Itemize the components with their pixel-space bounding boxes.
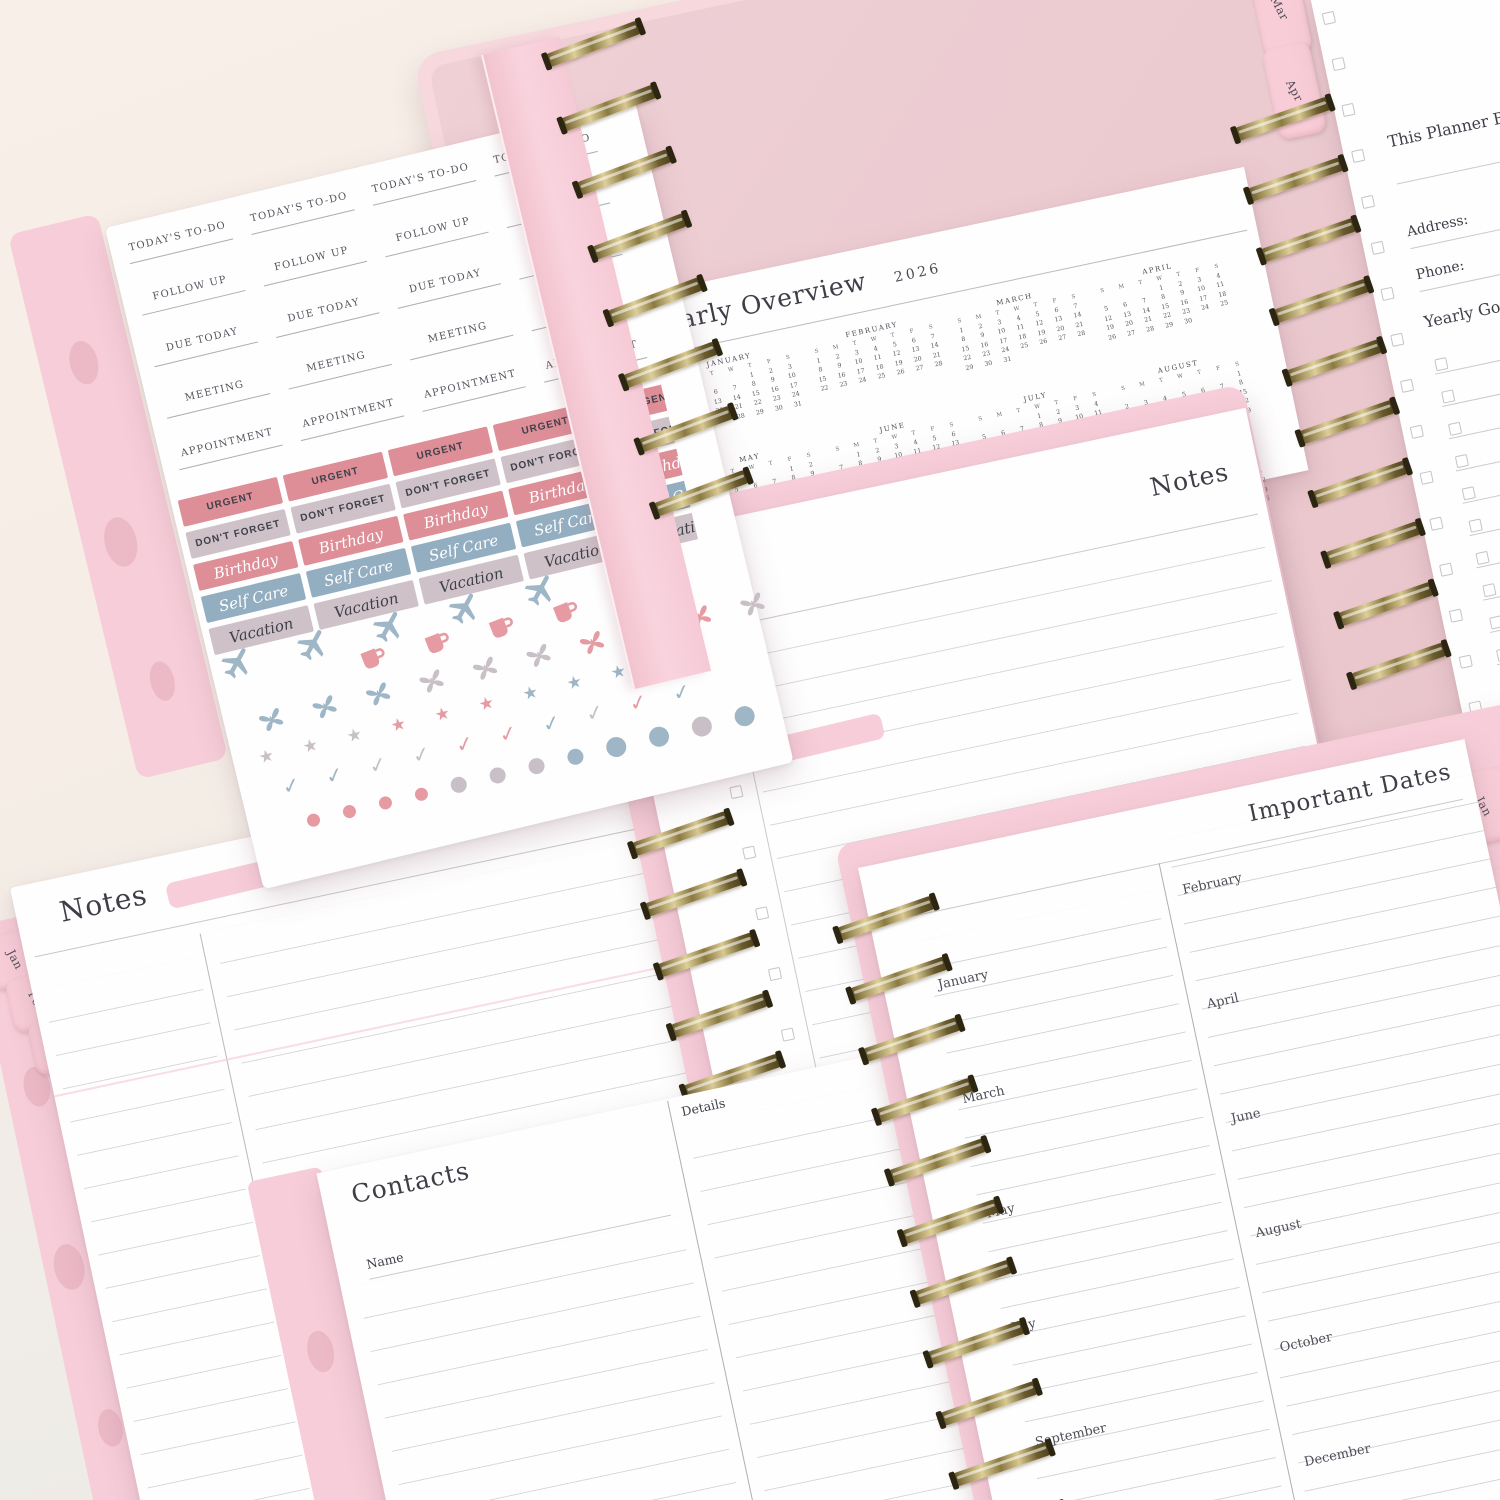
butterfly-icon: [523, 640, 556, 676]
planner-product-photo: Mar Apr Yearly Overview 2026 JANUARYSMTW…: [0, 0, 1500, 1500]
dot-icon: [733, 704, 758, 732]
goals-label: Yearly Goals:: [1422, 291, 1500, 332]
label-sticker-text: DUE TODAY: [393, 265, 501, 309]
butterfly-icon: [737, 588, 770, 624]
punch-hole: [1361, 195, 1375, 209]
month-label-august: August: [1254, 1217, 1302, 1241]
dot-icon: [690, 714, 715, 742]
label-sticker-text: FOLLOW UP: [259, 242, 367, 286]
dot-icon: [647, 725, 672, 753]
dot-icon: [604, 735, 629, 763]
star-icon: ★: [521, 684, 540, 704]
star-icon: ★: [433, 705, 452, 725]
address-label: Address:: [1406, 212, 1470, 241]
month-label-june: June: [1230, 1106, 1262, 1127]
month-label-april: April: [1206, 991, 1241, 1012]
star-icon: ★: [477, 695, 496, 715]
check-icon: ✓: [671, 680, 693, 705]
label-sticker-text: APPOINTMENT: [418, 368, 526, 412]
month-label-october: October: [1279, 1330, 1334, 1356]
punch-hole: [1371, 241, 1385, 255]
details-column-header: Details: [680, 1095, 726, 1119]
star-icon: ★: [565, 673, 584, 693]
dot-icon: [378, 795, 395, 815]
mug-icon: [487, 614, 519, 647]
mini-month-april: APRILSMTWTFS1234567891011121314151617181…: [1090, 251, 1237, 344]
check-icon: ✓: [541, 712, 563, 737]
label-sticker-text: TODAY'S TO-DO: [247, 191, 355, 235]
label-sticker-text: MEETING: [162, 375, 270, 419]
dot-icon: [566, 747, 586, 770]
month-label-january: January: [937, 967, 990, 992]
page-title: Contacts: [349, 1156, 473, 1209]
butterfly-icon: [470, 652, 503, 688]
star-icon: ★: [609, 663, 628, 683]
label-sticker-text: DUE TODAY: [150, 323, 258, 367]
month-label-february: February: [1181, 871, 1243, 898]
name-column-header: Name: [365, 1249, 405, 1271]
punch-hole: [768, 967, 782, 981]
star-icon: ★: [301, 737, 320, 757]
label-sticker-text: DUE TODAY: [271, 294, 379, 338]
butterfly-icon: [416, 665, 449, 701]
label-sticker-text: TODAY'S TO-DO: [368, 162, 476, 206]
butterfly-icon: [256, 704, 289, 740]
dot-icon: [413, 786, 430, 806]
punch-hole: [1390, 333, 1404, 347]
check-icon: ✓: [497, 722, 519, 747]
label-sticker-text: APPOINTMENT: [174, 426, 282, 470]
punch-hole: [1341, 103, 1355, 117]
plane-icon: [292, 623, 334, 668]
month-label-december: December: [1303, 1441, 1372, 1470]
page-title: Notes: [57, 878, 150, 929]
label-sticker-text: APPOINTMENT: [296, 397, 404, 441]
punch-hole: [755, 906, 769, 920]
punch-hole: [781, 1028, 795, 1042]
label-sticker-text: MEETING: [284, 345, 392, 389]
phone-label: Phone:: [1415, 257, 1466, 283]
butterfly-icon: [363, 678, 396, 714]
star-icon: ★: [257, 747, 276, 767]
label-sticker-text: FOLLOW UP: [380, 213, 488, 257]
belongs-label: This Planner Belongs to:: [1386, 91, 1500, 151]
punch-hole: [1351, 149, 1365, 163]
check-icon: ✓: [454, 733, 476, 758]
check-icon: ✓: [324, 764, 346, 789]
dot-icon: [306, 812, 323, 832]
label-sticker-text: FOLLOW UP: [137, 272, 245, 316]
butterfly-icon: [309, 691, 342, 727]
important-dates-planner: JanFeb Important Dates JanuaryMarchMayJu…: [858, 710, 1500, 1500]
plane-icon: [217, 642, 259, 687]
check-icon: ✓: [627, 691, 649, 716]
star-icon: ★: [345, 726, 364, 746]
punch-hole: [1332, 57, 1346, 71]
punch-hole: [1380, 287, 1394, 301]
mug-icon: [551, 598, 583, 631]
mug-icon: [423, 629, 455, 662]
check-icon: ✓: [584, 701, 606, 726]
star-icon: ★: [389, 716, 408, 736]
punch-hole: [1322, 11, 1336, 25]
check-icon: ✓: [280, 774, 302, 799]
butterfly-icon: [577, 627, 610, 663]
check-icon: ✓: [410, 743, 432, 768]
name-column-lines: [357, 1217, 768, 1500]
dot-icon: [488, 766, 508, 789]
dot-icon: [449, 775, 469, 798]
dot-icon: [527, 756, 547, 779]
check-icon: ✓: [367, 753, 389, 778]
mug-icon: [359, 644, 391, 677]
label-sticker-text: MEETING: [405, 316, 513, 360]
dot-icon: [342, 803, 359, 823]
label-sticker-text: TODAY'S TO-DO: [125, 220, 233, 264]
